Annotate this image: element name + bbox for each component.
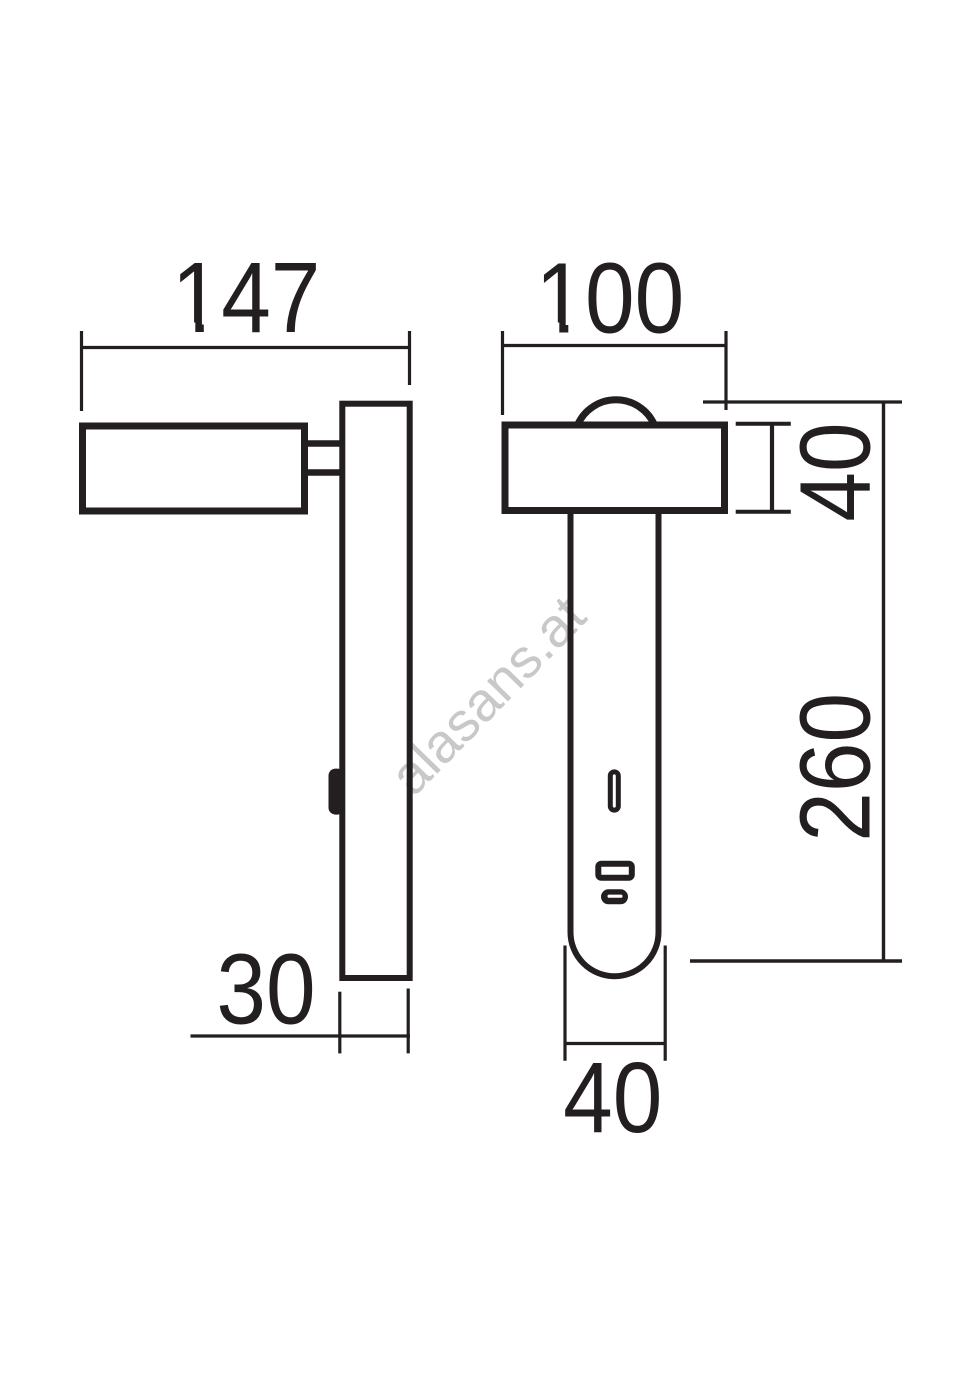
- svg-text:40: 40: [780, 422, 892, 521]
- svg-text:147: 147: [172, 242, 321, 354]
- svg-text:40: 40: [563, 1042, 662, 1154]
- svg-text:100: 100: [535, 243, 684, 355]
- svg-text:30: 30: [216, 934, 315, 1046]
- svg-text:260: 260: [780, 693, 892, 842]
